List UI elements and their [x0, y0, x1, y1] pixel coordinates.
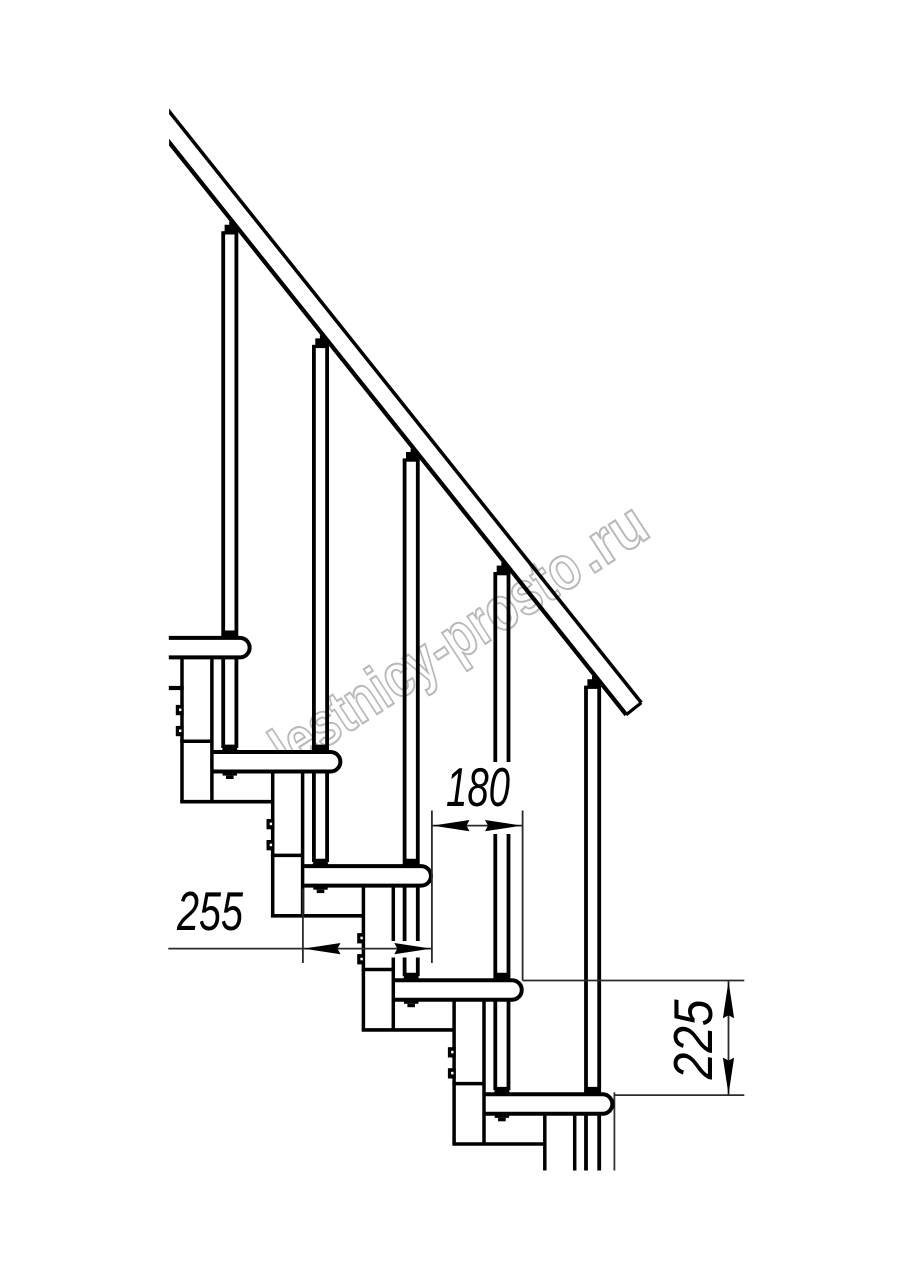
svg-text:255: 255: [176, 880, 243, 942]
svg-text:225: 225: [662, 999, 724, 1080]
svg-text:180: 180: [446, 756, 510, 818]
